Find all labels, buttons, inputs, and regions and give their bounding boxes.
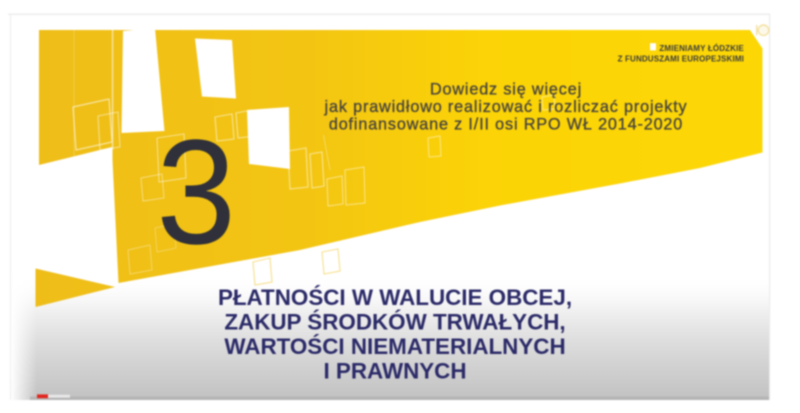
svg-text:ZMIENIAMY ŁÓDZKIE: ZMIENIAMY ŁÓDZKIE bbox=[659, 44, 744, 53]
svg-text:ZAKUP ŚRODKÓW TRWAŁYCH,: ZAKUP ŚRODKÓW TRWAŁYCH, bbox=[224, 310, 565, 335]
svg-text:jak prawidłowo realizować i ro: jak prawidłowo realizować i rozliczać pr… bbox=[324, 98, 688, 116]
svg-text:WARTOŚCI NIEMATERIALNYCH: WARTOŚCI NIEMATERIALNYCH bbox=[224, 334, 565, 359]
svg-text:Dowiedz się więcej: Dowiedz się więcej bbox=[430, 81, 582, 99]
svg-text:dofinansowane z I/II osi RPO W: dofinansowane z I/II osi RPO WŁ 2014-202… bbox=[329, 116, 683, 134]
svg-text:PŁATNOŚCI W WALUCIE OBCEJ,: PŁATNOŚCI W WALUCIE OBCEJ, bbox=[218, 285, 572, 310]
svg-text:3: 3 bbox=[156, 109, 236, 275]
svg-text:Z FUNDUSZAMI EUROPEJSKIMI: Z FUNDUSZAMI EUROPEJSKIMI bbox=[618, 55, 744, 64]
svg-text:I PRAWNYCH: I PRAWNYCH bbox=[323, 359, 466, 384]
